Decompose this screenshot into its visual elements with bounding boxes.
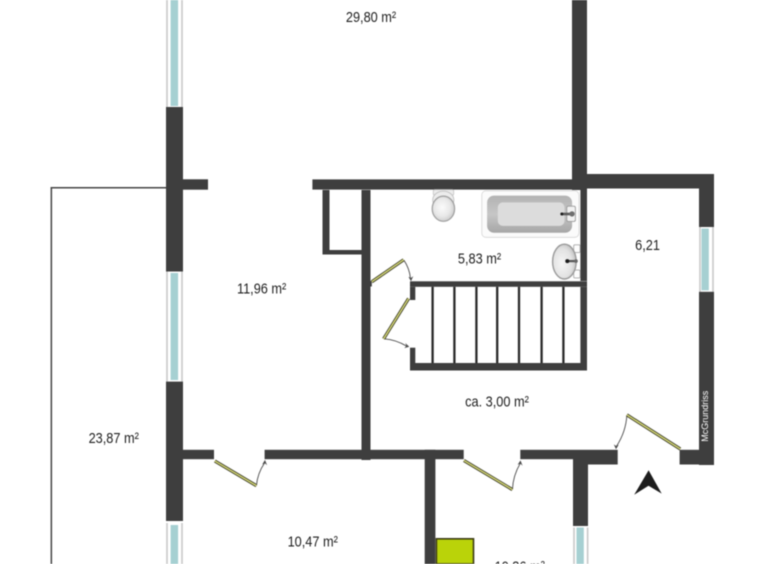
svg-text:10,47 m²: 10,47 m² [288, 532, 339, 549]
svg-text:6,21: 6,21 [635, 236, 660, 253]
svg-text:ca. 3,00 m²: ca. 3,00 m² [465, 392, 529, 409]
svg-text:McGrundriss: McGrundriss [700, 390, 710, 442]
svg-text:11,96 m²: 11,96 m² [237, 279, 287, 296]
svg-text:23,87 m²: 23,87 m² [89, 429, 140, 446]
svg-text:29,80 m²: 29,80 m² [346, 8, 397, 25]
svg-text:5,83 m²: 5,83 m² [458, 249, 502, 266]
svg-text:10,36 m²: 10,36 m² [495, 557, 546, 564]
